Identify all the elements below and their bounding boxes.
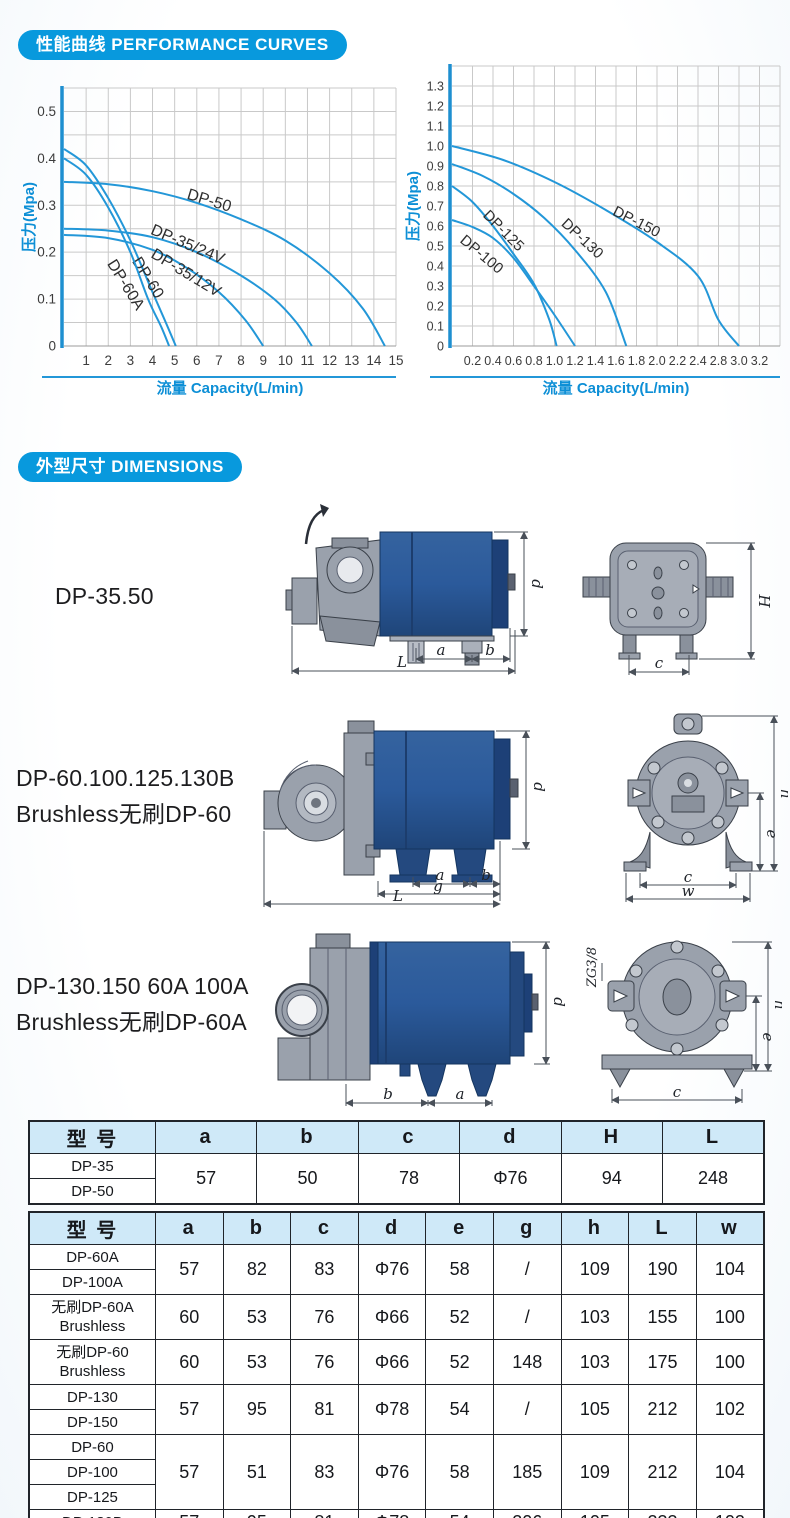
column-header: c	[291, 1212, 359, 1245]
y-tick-label: 0.4	[37, 151, 56, 166]
model-cell: DP-150	[29, 1410, 155, 1435]
drawing2-label-line2: Brushless无刷DP-60	[16, 796, 234, 832]
column-header: d	[460, 1121, 561, 1154]
x-axis-title: 流量 Capacity(L/min)	[157, 379, 304, 397]
y-tick-label: 0.4	[427, 260, 444, 274]
value-cell: Φ76	[460, 1154, 561, 1205]
x-tick-label: 0.4	[484, 354, 501, 368]
value-cell: 206	[493, 1510, 561, 1518]
drawing1-label: DP-35.50	[55, 578, 154, 614]
value-cell: 212	[629, 1435, 697, 1510]
x-tick-label: 2	[105, 353, 113, 368]
column-header: a	[155, 1212, 223, 1245]
value-cell: 190	[629, 1245, 697, 1295]
motor-body	[380, 532, 492, 636]
column-header: w	[696, 1212, 764, 1245]
value-cell: 50	[257, 1154, 358, 1205]
column-header: b	[257, 1121, 358, 1154]
y-tick-label: 0.7	[427, 200, 444, 214]
performance-chart-right: 00.10.20.30.40.50.60.70.80.91.01.11.21.3…	[404, 56, 788, 398]
y-tick-label: 0.2	[427, 300, 444, 314]
x-tick-label: 8	[237, 353, 245, 368]
dim-h: h	[777, 789, 788, 799]
value-cell: Φ78	[358, 1385, 426, 1435]
value-cell: Φ66	[358, 1295, 426, 1340]
value-cell: 83	[291, 1245, 359, 1295]
value-cell: 103	[561, 1340, 629, 1385]
value-cell: 76	[291, 1340, 359, 1385]
value-cell: 233	[629, 1510, 697, 1518]
value-cell: 60	[155, 1295, 223, 1340]
base-plate	[602, 1055, 752, 1069]
y-tick-label: 1.3	[427, 80, 444, 94]
value-cell: 103	[561, 1295, 629, 1340]
dim-c: c	[673, 1083, 682, 1101]
value-cell: 95	[223, 1385, 291, 1435]
value-cell: 82	[223, 1245, 291, 1295]
y-tick-label: 1.1	[427, 120, 444, 134]
dim-d: d	[528, 579, 546, 589]
y-axis-title: 压力(Mpa)	[20, 182, 38, 252]
dim-c: c	[655, 654, 664, 672]
dim-L: L	[396, 653, 407, 671]
value-cell: 53	[223, 1340, 291, 1385]
y-tick-label: 0.1	[37, 292, 56, 307]
performance-chart-left: 00.10.20.30.40.5123456789101112131415DP-…	[20, 76, 404, 398]
fitting-right	[706, 577, 733, 597]
column-header: a	[155, 1121, 256, 1154]
column-header: H	[561, 1121, 662, 1154]
datasheet-page: 性能曲线 PERFORMANCE CURVES 外型尺寸 DIMENSIONS …	[0, 0, 790, 1518]
dim-e: e	[763, 830, 781, 839]
y-tick-label: 0.5	[37, 104, 56, 119]
y-tick-label: 0.8	[427, 180, 444, 194]
y-tick-label: 0	[437, 340, 444, 354]
value-cell: 102	[696, 1385, 764, 1435]
value-cell: 81	[291, 1510, 359, 1518]
y-tick-label: 0.3	[37, 198, 56, 213]
value-cell: 60	[155, 1340, 223, 1385]
y-tick-label: 0	[48, 339, 56, 354]
dim-d: d	[550, 997, 568, 1007]
value-cell: 51	[223, 1435, 291, 1510]
x-tick-label: 15	[388, 353, 403, 368]
value-cell: 175	[629, 1340, 697, 1385]
dim-b: b	[383, 1085, 393, 1103]
drawing3-label-line2: Brushless无刷DP-60A	[16, 1004, 249, 1040]
y-tick-label: 1.2	[427, 100, 444, 114]
value-cell: 100	[696, 1340, 764, 1385]
value-cell: 57	[155, 1245, 223, 1295]
y-tick-label: 0.9	[427, 160, 444, 174]
column-header: L	[663, 1121, 764, 1154]
value-cell: 54	[426, 1510, 494, 1518]
column-header: h	[561, 1212, 629, 1245]
value-cell: 54	[426, 1385, 494, 1435]
value-cell: 185	[493, 1435, 561, 1510]
column-header: L	[629, 1212, 697, 1245]
value-cell: /	[493, 1295, 561, 1340]
dim-a: a	[456, 1085, 465, 1103]
dim-L: L	[392, 887, 403, 905]
value-cell: 94	[561, 1154, 662, 1205]
dim-e: e	[759, 1033, 777, 1042]
power-wire	[306, 510, 324, 544]
dim-b: b	[481, 866, 491, 884]
pump-side-view-dp35: a b L d	[262, 498, 562, 676]
x-tick-label: 7	[215, 353, 223, 368]
model-cell: 无刷DP-60 Brushless	[29, 1340, 155, 1385]
foot-right	[462, 641, 482, 653]
value-cell: Φ76	[358, 1435, 426, 1510]
model-cell: DP-35	[29, 1154, 155, 1179]
value-cell: 81	[291, 1385, 359, 1435]
x-tick-label: 0.6	[505, 354, 522, 368]
x-tick-label: 1.8	[628, 354, 645, 368]
x-tick-label: 0.2	[464, 354, 481, 368]
pump-end-view-dp130: ZG3/8 h e c	[572, 905, 782, 1110]
value-cell: 104	[696, 1435, 764, 1510]
x-tick-label: 11	[300, 353, 314, 368]
x-tick-label: 6	[193, 353, 201, 368]
x-tick-label: 2.4	[689, 354, 706, 368]
model-cell: DP-60A	[29, 1245, 155, 1270]
drawing2-label-line1: DP-60.100.125.130B	[16, 760, 234, 796]
y-tick-label: 0.5	[427, 240, 444, 254]
value-cell: 102	[696, 1510, 764, 1518]
model-cell: DP-50	[29, 1179, 155, 1205]
curve-label-DP-100: DP-100	[457, 232, 507, 278]
model-cell: DP-130	[29, 1385, 155, 1410]
motor-body	[370, 942, 510, 1064]
x-tick-label: 1	[82, 353, 90, 368]
dim-a: a	[437, 641, 446, 659]
foot-right	[468, 1064, 496, 1096]
x-tick-label: 9	[259, 353, 267, 368]
y-tick-label: 0.6	[427, 220, 444, 234]
value-cell: /	[493, 1385, 561, 1435]
thread-label: ZG3/8	[585, 947, 600, 988]
value-cell: 58	[426, 1435, 494, 1510]
x-tick-label: 4	[149, 353, 157, 368]
dimensions-table-dp60-family: 型 号abcdeghLwDP-60A578283Φ7658/109190104D…	[28, 1211, 765, 1518]
column-header: 型 号	[29, 1121, 155, 1154]
value-cell: 57	[155, 1154, 256, 1205]
x-tick-label: 0.8	[525, 354, 542, 368]
foot-left	[396, 849, 430, 875]
value-cell: 105	[561, 1385, 629, 1435]
value-cell: Φ78	[358, 1510, 426, 1518]
dim-H: H	[755, 593, 773, 608]
curve-label-DP-50: DP-50	[185, 186, 233, 216]
spec-table-1: 型 号abcdeghLwDP-60A578283Φ7658/109190104D…	[28, 1211, 765, 1518]
value-cell: 100	[696, 1295, 764, 1340]
pump-side-view-dp60: a b g L d	[248, 695, 578, 909]
x-tick-label: 12	[322, 353, 337, 368]
value-cell: 155	[629, 1295, 697, 1340]
x-tick-label: 1.6	[607, 354, 624, 368]
dim-b: b	[485, 641, 495, 659]
x-tick-label: 1.4	[587, 354, 604, 368]
value-cell: 109	[561, 1245, 629, 1295]
value-cell: /	[493, 1245, 561, 1295]
x-tick-label: 5	[171, 353, 179, 368]
y-tick-label: 0.1	[427, 320, 444, 334]
performance-curves-badge: 性能曲线 PERFORMANCE CURVES	[18, 30, 347, 60]
value-cell: 104	[696, 1245, 764, 1295]
dim-g: g	[433, 877, 443, 895]
motor-body	[374, 731, 494, 849]
value-cell: 76	[291, 1295, 359, 1340]
x-tick-label: 1.2	[566, 354, 583, 368]
column-header: e	[426, 1212, 494, 1245]
value-cell: 105	[561, 1510, 629, 1518]
value-cell: 57	[155, 1510, 223, 1518]
value-cell: 52	[426, 1340, 494, 1385]
value-cell: 148	[493, 1340, 561, 1385]
value-cell: Φ66	[358, 1340, 426, 1385]
y-tick-label: 1.0	[427, 140, 444, 154]
pump-end-view-dp35: H c	[565, 515, 775, 680]
dimensions-table-dp35-50: 型 号abcdHLDP-35575078Φ7694248DP-50	[28, 1120, 765, 1205]
model-cell: 无刷DP-60A Brushless	[29, 1295, 155, 1340]
column-header: d	[358, 1212, 426, 1245]
x-tick-label: 10	[278, 353, 293, 368]
dim-h: h	[771, 1000, 782, 1010]
value-cell: 95	[223, 1510, 291, 1518]
x-tick-label: 3.2	[751, 354, 768, 368]
value-cell: 52	[426, 1295, 494, 1340]
value-cell: 58	[426, 1245, 494, 1295]
column-header: b	[223, 1212, 291, 1245]
foot-left	[418, 1064, 446, 1096]
model-cell: DP-60	[29, 1435, 155, 1460]
column-header: c	[358, 1121, 459, 1154]
x-tick-label: 2.0	[648, 354, 665, 368]
x-tick-label: 3	[127, 353, 135, 368]
dimensions-badge: 外型尺寸 DIMENSIONS	[18, 452, 242, 482]
value-cell: 212	[629, 1385, 697, 1435]
x-tick-label: 3.0	[730, 354, 747, 368]
column-header: 型 号	[29, 1212, 155, 1245]
value-cell: 57	[155, 1435, 223, 1510]
model-cell: DP-125	[29, 1485, 155, 1510]
model-cell: DP-100A	[29, 1270, 155, 1295]
value-cell: Φ76	[358, 1245, 426, 1295]
x-tick-label: 14	[366, 353, 382, 368]
value-cell: 109	[561, 1435, 629, 1510]
x-tick-label: 2.2	[669, 354, 686, 368]
value-cell: 53	[223, 1295, 291, 1340]
pump-side-view-dp130: b a d	[250, 910, 580, 1110]
drawing3-label: DP-130.150 60A 100A Brushless无刷DP-60A	[16, 968, 249, 1040]
pump-end-view-dp60: h e c w	[588, 698, 788, 906]
value-cell: 248	[663, 1154, 764, 1205]
value-cell: 57	[155, 1385, 223, 1435]
dim-d: d	[530, 782, 548, 792]
column-header: g	[493, 1212, 561, 1245]
model-cell: DP-130B	[29, 1510, 155, 1518]
model-cell: DP-100	[29, 1460, 155, 1485]
y-axis-title: 压力(Mpa)	[404, 171, 422, 241]
y-tick-label: 0.3	[427, 280, 444, 294]
x-tick-label: 2.8	[710, 354, 727, 368]
value-cell: 78	[358, 1154, 459, 1205]
x-tick-label: 13	[344, 353, 359, 368]
y-tick-label: 0.2	[37, 245, 56, 260]
x-tick-label: 1.0	[546, 354, 563, 368]
spec-table-0: 型 号abcdHLDP-35575078Φ7694248DP-50	[28, 1120, 765, 1205]
drawing3-label-line1: DP-130.150 60A 100A	[16, 968, 249, 1004]
x-axis-title: 流量 Capacity(L/min)	[543, 379, 690, 397]
drawing2-label: DP-60.100.125.130B Brushless无刷DP-60	[16, 760, 234, 832]
value-cell: 83	[291, 1435, 359, 1510]
dim-w: w	[682, 882, 695, 900]
